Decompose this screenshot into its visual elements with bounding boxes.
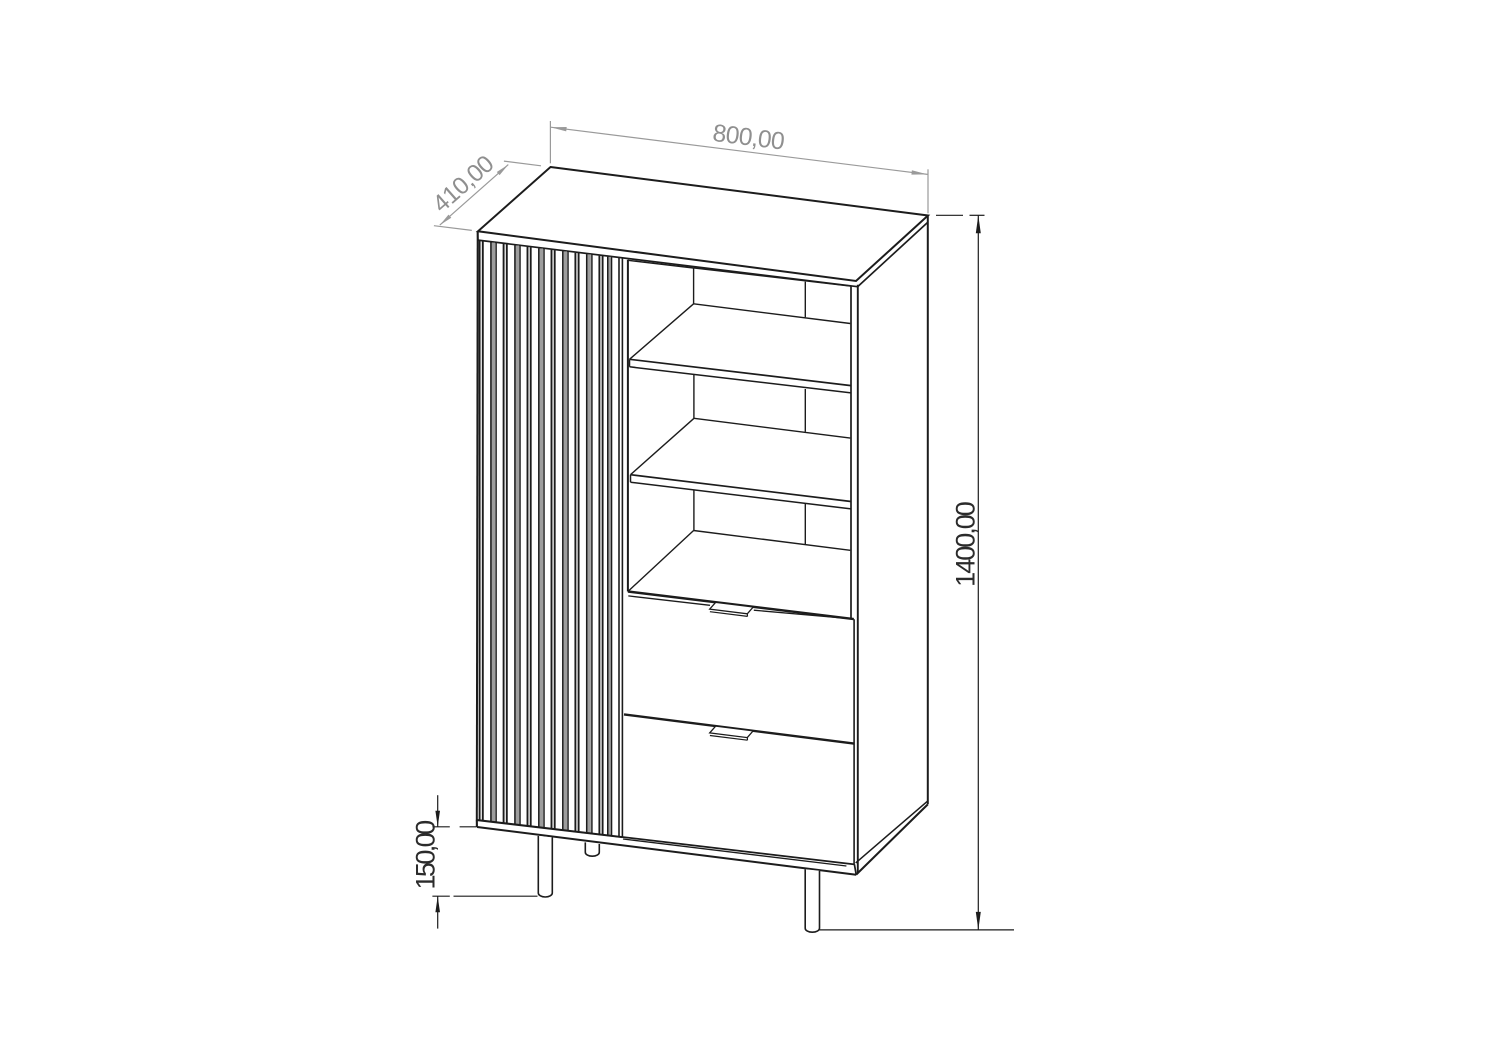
svg-text:150,00: 150,00	[410, 821, 440, 890]
svg-text:1400,00: 1400,00	[951, 502, 981, 587]
